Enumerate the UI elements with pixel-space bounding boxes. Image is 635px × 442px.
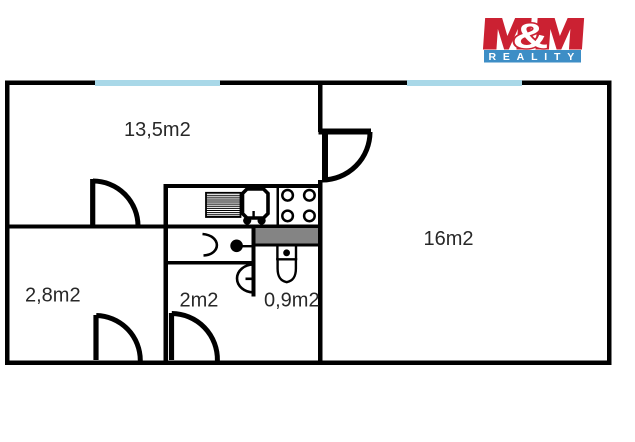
svg-text:16m2: 16m2 <box>424 228 474 250</box>
svg-text:13,5m2: 13,5m2 <box>124 119 191 141</box>
svg-text:0,9m2: 0,9m2 <box>264 290 320 312</box>
svg-text:2,8m2: 2,8m2 <box>25 285 81 307</box>
svg-text:2m2: 2m2 <box>180 290 219 312</box>
svg-text:REALITY: REALITY <box>489 51 582 63</box>
